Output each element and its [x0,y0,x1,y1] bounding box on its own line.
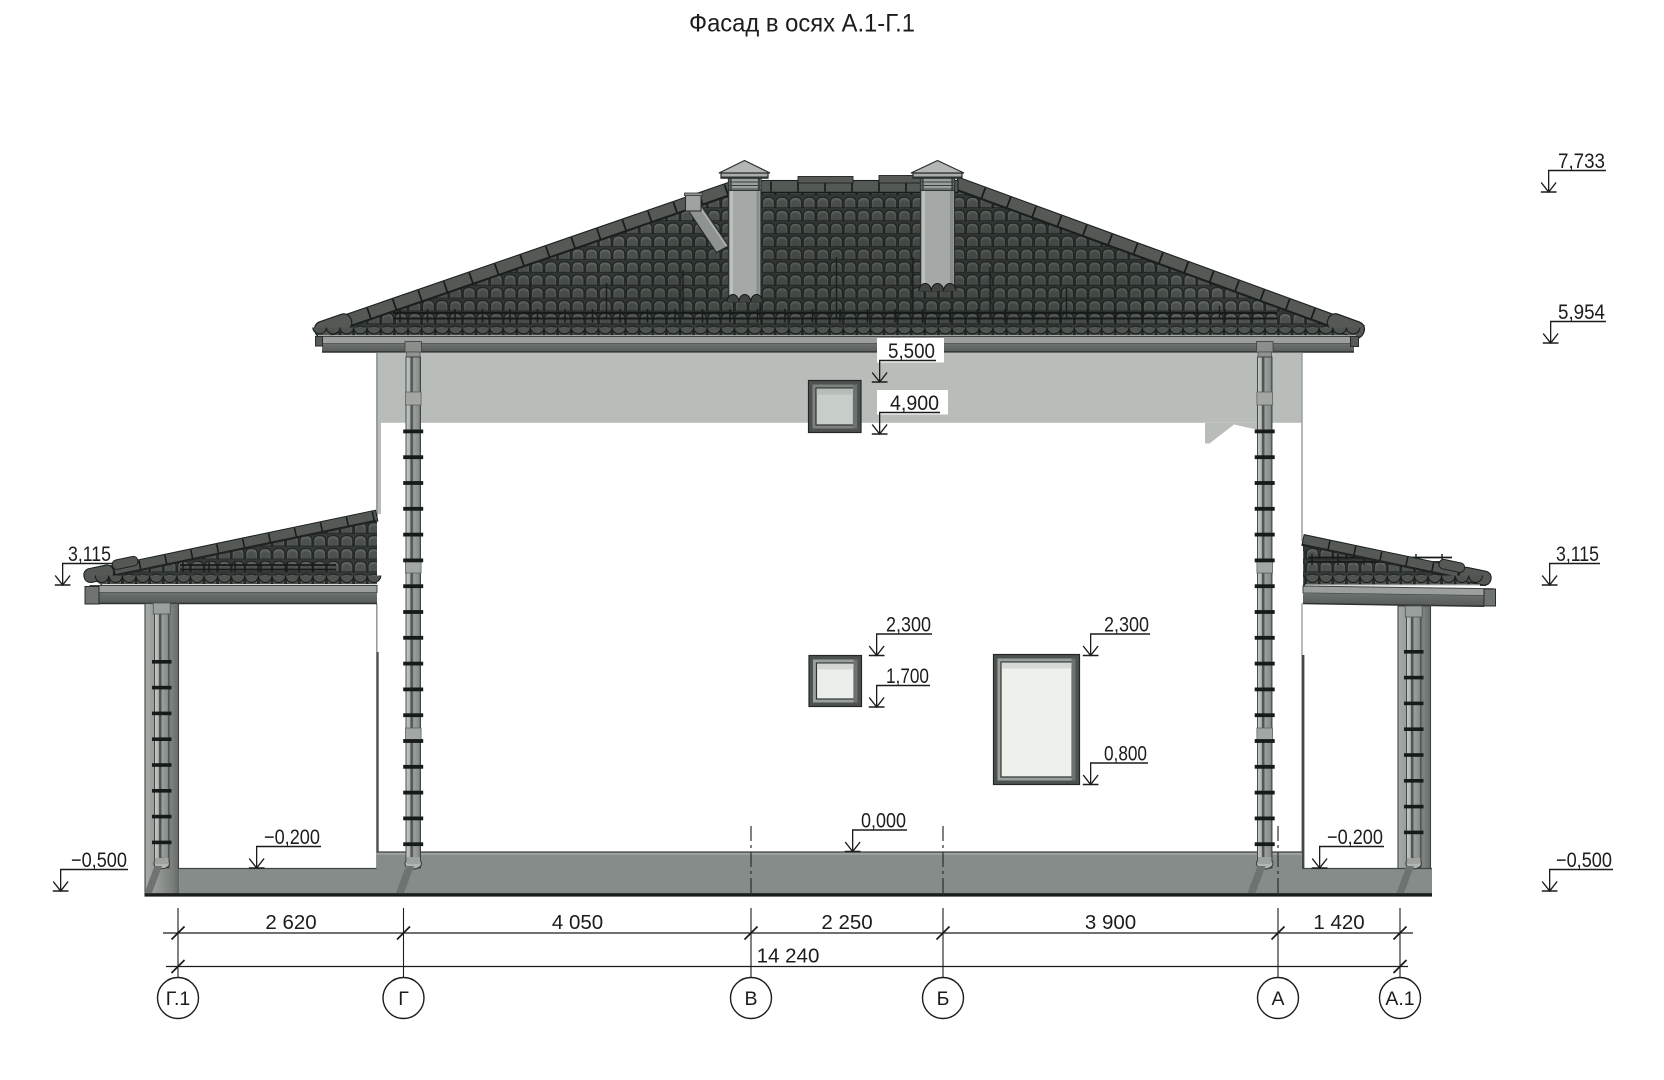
svg-text:2,300: 2,300 [1104,614,1149,637]
svg-text:Г.1: Г.1 [166,988,190,1010]
svg-text:А.1: А.1 [1385,988,1414,1010]
svg-text:2 620: 2 620 [265,911,316,934]
svg-text:2 250: 2 250 [821,911,872,934]
svg-text:В: В [744,988,757,1010]
svg-text:4,900: 4,900 [890,392,939,415]
svg-text:7,733: 7,733 [1558,150,1605,173]
svg-text:−0,200: −0,200 [1327,826,1383,849]
svg-text:−0,500: −0,500 [71,849,127,872]
svg-text:Фасад в осях А.1-Г.1: Фасад в осях А.1-Г.1 [689,10,915,38]
svg-text:0,000: 0,000 [861,810,906,833]
svg-text:Б: Б [937,988,950,1010]
svg-text:0,800: 0,800 [1104,743,1147,766]
svg-text:3,115: 3,115 [68,543,111,566]
svg-text:4 050: 4 050 [552,911,603,934]
svg-text:−0,200: −0,200 [264,826,320,849]
svg-text:1 420: 1 420 [1313,911,1364,934]
svg-text:3 900: 3 900 [1085,911,1136,934]
svg-text:3,115: 3,115 [1556,543,1599,566]
svg-text:5,954: 5,954 [1558,301,1605,324]
svg-text:А: А [1271,988,1284,1010]
svg-text:14 240: 14 240 [757,945,820,968]
svg-text:5,500: 5,500 [888,340,935,363]
svg-text:2,300: 2,300 [886,614,931,637]
svg-text:Г: Г [398,988,409,1010]
svg-text:−0,500: −0,500 [1556,849,1612,872]
svg-text:1,700: 1,700 [886,665,929,688]
